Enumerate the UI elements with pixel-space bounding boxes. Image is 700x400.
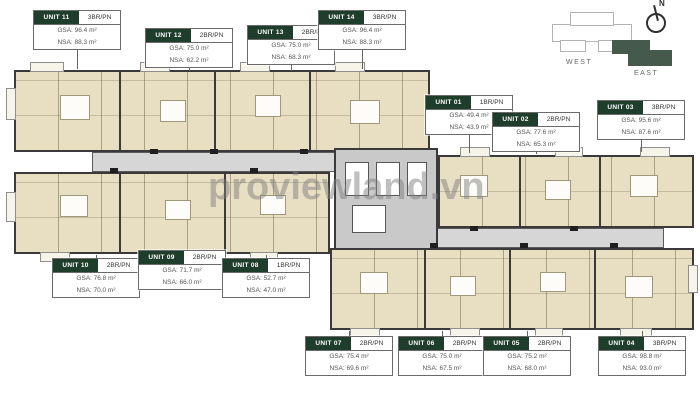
label-connector bbox=[641, 139, 642, 152]
unit-label-12: UNIT 12 2BR/PN GSA: 75.0 m² NSA: 62.2 m² bbox=[145, 28, 233, 68]
unit-type: 2BR/PN bbox=[444, 337, 485, 350]
unit-label-header: UNIT 01 1BR/PN bbox=[426, 96, 512, 110]
room bbox=[165, 200, 191, 220]
balcony bbox=[335, 62, 365, 72]
balcony bbox=[30, 62, 64, 72]
unit-type: 2BR/PN bbox=[351, 337, 392, 350]
room bbox=[350, 100, 380, 124]
unit-label-02: UNIT 02 2BR/PN GSA: 77.6 m² NSA: 65.3 m² bbox=[492, 112, 580, 152]
unit-label-header: UNIT 11 3BR/PN bbox=[34, 11, 120, 25]
label-connector bbox=[642, 331, 643, 337]
compass-north-label: N bbox=[659, 0, 665, 8]
balcony bbox=[640, 147, 670, 157]
unit-nsa: NSA: 66.0 m² bbox=[139, 277, 225, 289]
label-connector bbox=[442, 331, 443, 337]
unit-label-header: UNIT 04 3BR/PN bbox=[599, 337, 685, 351]
east-tower-filled bbox=[612, 40, 672, 68]
unit-label-header: UNIT 07 2BR/PN bbox=[306, 337, 392, 351]
unit-label-06: UNIT 06 2BR/PN GSA: 75.0 m² NSA: 67.5 m² bbox=[398, 336, 486, 376]
unit-nsa: NSA: 88.3 m² bbox=[34, 37, 120, 49]
room bbox=[60, 95, 90, 120]
unit-label-header: UNIT 12 2BR/PN bbox=[146, 29, 232, 43]
unit-label-header: UNIT 08 1BR/PN bbox=[223, 259, 309, 273]
unit-label-header: UNIT 06 2BR/PN bbox=[399, 337, 485, 351]
floorplan-canvas: UNIT 11 3BR/PN GSA: 96.4 m² NSA: 88.3 m²… bbox=[0, 0, 700, 400]
unit-nsa: NSA: 88.3 m² bbox=[319, 37, 405, 49]
unit-label-11: UNIT 11 3BR/PN GSA: 96.4 m² NSA: 88.3 m² bbox=[33, 10, 121, 50]
unit-label-header: UNIT 14 3BR/PN bbox=[319, 11, 405, 25]
unit-id: UNIT 08 bbox=[223, 259, 268, 272]
unit-type: 2BR/PN bbox=[538, 113, 579, 126]
unit-nsa: NSA: 65.3 m² bbox=[493, 139, 579, 151]
unit-type: 2BR/PN bbox=[98, 259, 139, 272]
unit-id: UNIT 04 bbox=[599, 337, 644, 350]
unit-gsa: GSA: 95.6 m² bbox=[598, 115, 684, 127]
label-connector bbox=[77, 49, 78, 69]
room bbox=[625, 276, 653, 298]
balcony bbox=[688, 265, 698, 293]
label-connector bbox=[291, 64, 292, 71]
unit-id: UNIT 10 bbox=[53, 259, 98, 272]
room bbox=[540, 272, 566, 292]
label-connector bbox=[362, 49, 363, 69]
room bbox=[60, 195, 88, 217]
room bbox=[360, 272, 388, 294]
stair-shaft bbox=[352, 205, 386, 233]
door-tick bbox=[610, 243, 618, 248]
door-tick bbox=[520, 243, 528, 248]
unit-type: 1BR/PN bbox=[268, 259, 309, 272]
unit-label-07: UNIT 07 2BR/PN GSA: 75.4 m² NSA: 69.6 m² bbox=[305, 336, 393, 376]
unit-nsa: NSA: 87.6 m² bbox=[598, 127, 684, 139]
unit-gsa: GSA: 75.2 m² bbox=[484, 351, 570, 363]
door-tick bbox=[570, 226, 578, 231]
unit-gsa: GSA: 75.0 m² bbox=[399, 351, 485, 363]
unit-label-header: UNIT 10 2BR/PN bbox=[53, 259, 139, 273]
label-connector bbox=[266, 255, 267, 259]
door-tick bbox=[110, 168, 118, 173]
unit-type: 3BR/PN bbox=[79, 11, 120, 24]
unit-id: UNIT 02 bbox=[493, 113, 538, 126]
unit-wall bbox=[309, 70, 311, 152]
room bbox=[160, 100, 186, 122]
door-tick bbox=[430, 243, 438, 248]
unit-id: UNIT 03 bbox=[598, 101, 643, 114]
unit-type: 3BR/PN bbox=[364, 11, 405, 24]
unit-label-header: UNIT 09 2BR/PN bbox=[139, 251, 225, 265]
unit-label-header: UNIT 05 2BR/PN bbox=[484, 337, 570, 351]
unit-nsa: NSA: 68.0 m² bbox=[484, 363, 570, 375]
unit-label-03: UNIT 03 3BR/PN GSA: 95.6 m² NSA: 87.6 m² bbox=[597, 100, 685, 140]
unit-gsa: GSA: 76.8 m² bbox=[53, 273, 139, 285]
unit-label-10: UNIT 10 2BR/PN GSA: 76.8 m² NSA: 70.0 m² bbox=[52, 258, 140, 298]
door-tick bbox=[300, 149, 308, 154]
west-label: WEST bbox=[566, 59, 592, 66]
unit-gsa: GSA: 71.7 m² bbox=[139, 265, 225, 277]
unit-label-08: UNIT 08 1BR/PN GSA: 52.7 m² NSA: 47.0 m² bbox=[222, 258, 310, 298]
unit-id: UNIT 06 bbox=[399, 337, 444, 350]
unit-type: 3BR/PN bbox=[643, 101, 684, 114]
unit-gsa: GSA: 75.4 m² bbox=[306, 351, 392, 363]
unit-label-14: UNIT 14 3BR/PN GSA: 96.4 m² NSA: 88.3 m² bbox=[318, 10, 406, 50]
unit-type: 3BR/PN bbox=[644, 337, 685, 350]
balcony bbox=[6, 88, 16, 120]
door-tick bbox=[150, 149, 158, 154]
unit-wall bbox=[424, 248, 426, 330]
east-label: EAST bbox=[634, 70, 658, 77]
label-connector bbox=[536, 151, 537, 154]
label-connector bbox=[469, 134, 470, 153]
unit-wall bbox=[519, 155, 521, 228]
unit-wall bbox=[509, 248, 511, 330]
unit-nsa: NSA: 69.6 m² bbox=[306, 363, 392, 375]
unit-nsa: NSA: 47.0 m² bbox=[223, 285, 309, 297]
label-connector bbox=[189, 67, 190, 71]
unit-nsa: NSA: 67.5 m² bbox=[399, 363, 485, 375]
unit-nsa: NSA: 62.2 m² bbox=[146, 55, 232, 67]
label-connector bbox=[349, 331, 350, 337]
label-connector bbox=[96, 255, 97, 259]
unit-gsa: GSA: 98.8 m² bbox=[599, 351, 685, 363]
unit-wall bbox=[599, 155, 601, 228]
unit-id: UNIT 13 bbox=[248, 26, 293, 39]
watermark: proviewland.vn bbox=[208, 166, 485, 209]
unit-type: 2BR/PN bbox=[191, 29, 232, 42]
unit-type: 2BR/PN bbox=[184, 251, 225, 264]
unit-nsa: NSA: 93.0 m² bbox=[599, 363, 685, 375]
unit-id: UNIT 12 bbox=[146, 29, 191, 42]
unit-label-09: UNIT 09 2BR/PN GSA: 71.7 m² NSA: 66.0 m² bbox=[138, 250, 226, 290]
unit-id: UNIT 01 bbox=[426, 96, 471, 109]
unit-gsa: GSA: 77.6 m² bbox=[493, 127, 579, 139]
label-connector bbox=[527, 331, 528, 337]
balcony bbox=[6, 192, 16, 222]
balcony bbox=[460, 147, 490, 157]
room bbox=[450, 276, 476, 296]
unit-id: UNIT 11 bbox=[34, 11, 79, 24]
unit-type: 1BR/PN bbox=[471, 96, 512, 109]
unit-id: UNIT 14 bbox=[319, 11, 364, 24]
unit-id: UNIT 07 bbox=[306, 337, 351, 350]
unit-label-header: UNIT 02 2BR/PN bbox=[493, 113, 579, 127]
unit-label-header: UNIT 03 3BR/PN bbox=[598, 101, 684, 115]
unit-wall bbox=[594, 248, 596, 330]
unit-wall bbox=[119, 172, 121, 254]
door-tick bbox=[210, 149, 218, 154]
unit-id: UNIT 09 bbox=[139, 251, 184, 264]
unit-id: UNIT 05 bbox=[484, 337, 529, 350]
unit-gsa: GSA: 52.7 m² bbox=[223, 273, 309, 285]
unit-gsa: GSA: 75.0 m² bbox=[146, 43, 232, 55]
room bbox=[630, 175, 658, 197]
unit-gsa: GSA: 96.4 m² bbox=[34, 25, 120, 37]
room bbox=[545, 180, 571, 200]
unit-type: 2BR/PN bbox=[529, 337, 570, 350]
unit-label-04: UNIT 04 3BR/PN GSA: 98.8 m² NSA: 93.0 m² bbox=[598, 336, 686, 376]
unit-nsa: NSA: 68.3 m² bbox=[248, 52, 334, 64]
unit-wall bbox=[214, 70, 216, 152]
door-tick bbox=[470, 226, 478, 231]
room bbox=[255, 95, 281, 117]
unit-gsa: GSA: 96.4 m² bbox=[319, 25, 405, 37]
compass-icon bbox=[646, 13, 666, 33]
unit-nsa: NSA: 70.0 m² bbox=[53, 285, 139, 297]
unit-label-05: UNIT 05 2BR/PN GSA: 75.2 m² NSA: 68.0 m² bbox=[483, 336, 571, 376]
unit-wall bbox=[119, 70, 121, 152]
